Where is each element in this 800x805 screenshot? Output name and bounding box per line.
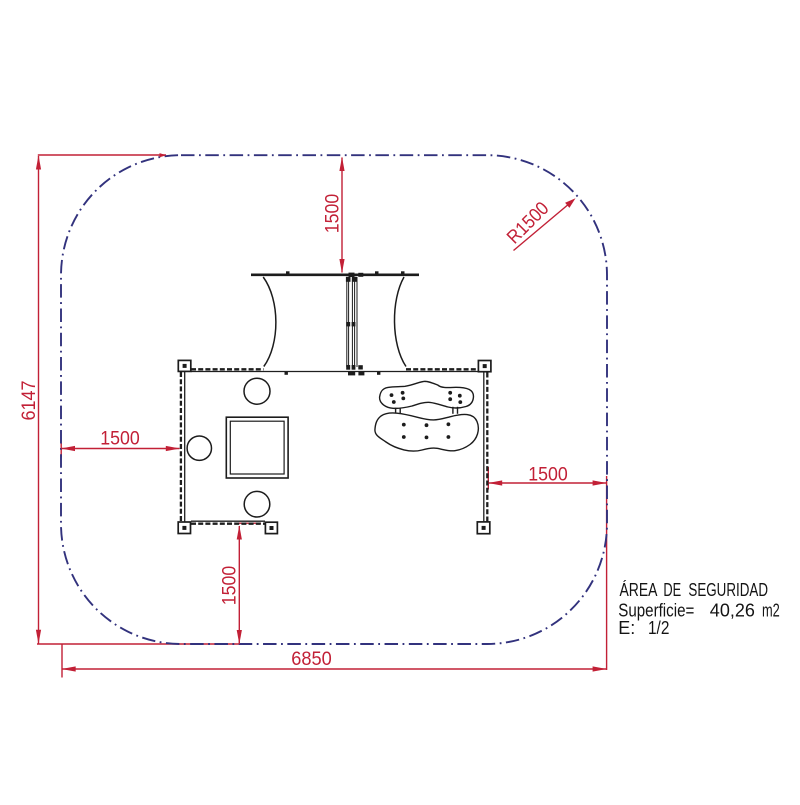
svg-text:6147: 6147: [19, 381, 40, 421]
svg-text:1/2: 1/2: [648, 618, 669, 638]
svg-text:SEGURIDAD: SEGURIDAD: [688, 580, 768, 600]
svg-text:6850: 6850: [291, 649, 332, 670]
svg-text:1500: 1500: [220, 566, 241, 606]
svg-text:ÁREA: ÁREA: [620, 580, 658, 600]
svg-text:1500: 1500: [100, 429, 140, 450]
svg-text:DE: DE: [663, 580, 681, 600]
svg-text:1500: 1500: [322, 194, 343, 234]
svg-text:m2: m2: [762, 600, 780, 620]
svg-text:1500: 1500: [528, 464, 568, 485]
svg-text:40,26: 40,26: [710, 600, 755, 620]
svg-text:E:: E:: [618, 618, 635, 638]
